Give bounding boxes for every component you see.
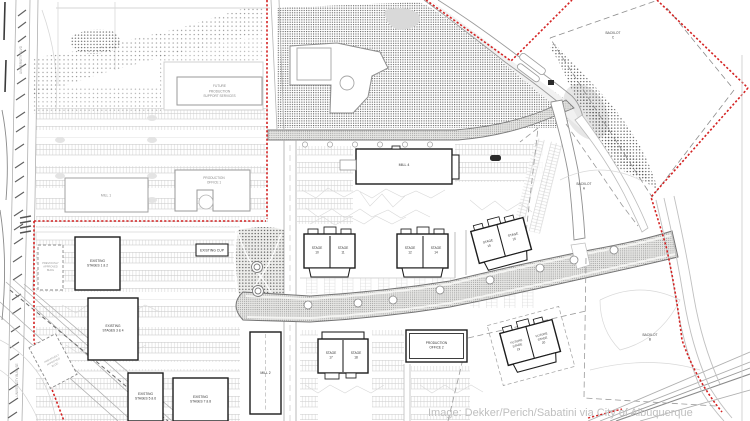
svg-text:11: 11 [341,251,345,255]
svg-text:OFFICE 1: OFFICE 1 [207,181,222,185]
svg-text:STAGE: STAGE [351,351,362,355]
svg-text:EXISTING: EXISTING [193,395,208,399]
svg-text:12: 12 [408,251,412,255]
svg-text:EXISTING: EXISTING [138,392,153,396]
svg-text:BACKLOT: BACKLOT [606,31,621,35]
svg-text:STAGES 1 & 2: STAGES 1 & 2 [87,264,108,268]
svg-text:STAGES 3 & 4: STAGES 3 & 4 [102,329,123,333]
svg-text:EXISTING: EXISTING [90,259,105,263]
svg-text:STAGE: STAGE [338,246,349,250]
svg-text:Image: Dekker/Perich/Sabatini: Image: Dekker/Perich/Sabatini via City o… [428,407,693,419]
svg-text:BLDG: BLDG [47,268,54,272]
svg-text:SUPPORT SERVICES: SUPPORT SERVICES [203,94,235,98]
svg-text:UNIVERSITY BLVD SE: UNIVERSITY BLVD SE [15,363,19,396]
svg-text:B: B [649,338,651,342]
svg-text:PRODUCTION: PRODUCTION [203,176,225,180]
svg-text:UNIVERSITY BLVD: UNIVERSITY BLVD [19,45,23,74]
svg-text:EXISTING: EXISTING [106,324,121,328]
svg-text:17: 17 [329,356,333,360]
svg-text:18: 18 [354,356,358,360]
svg-text:BACKLOT: BACKLOT [643,333,658,337]
svg-text:EXISTING CUP: EXISTING CUP [200,249,225,253]
svg-text:STAGE: STAGE [405,246,416,250]
svg-text:10: 10 [315,251,319,255]
svg-text:MILL 1: MILL 1 [101,194,111,198]
svg-text:MILL 4: MILL 4 [399,163,410,167]
svg-text:OFFICE 2: OFFICE 2 [429,346,444,350]
svg-text:BACKLOT: BACKLOT [577,182,592,186]
svg-text:14: 14 [434,251,438,255]
svg-text:FUTURE: FUTURE [213,84,226,88]
svg-text:PREVIOUSLY: PREVIOUSLY [42,261,59,265]
svg-text:STAGE: STAGE [431,246,442,250]
svg-text:STAGE: STAGE [326,351,337,355]
svg-text:STAGE: STAGE [312,246,323,250]
svg-text:STAGES 5 & 6: STAGES 5 & 6 [135,397,156,401]
svg-text:STAGES 7 & 8: STAGES 7 & 8 [190,400,211,404]
svg-text:PRODUCTION: PRODUCTION [209,90,231,94]
svg-text:PRODUCTION: PRODUCTION [426,341,448,345]
svg-text:APPROVED: APPROVED [43,265,58,269]
svg-text:MILL 2: MILL 2 [260,371,270,375]
